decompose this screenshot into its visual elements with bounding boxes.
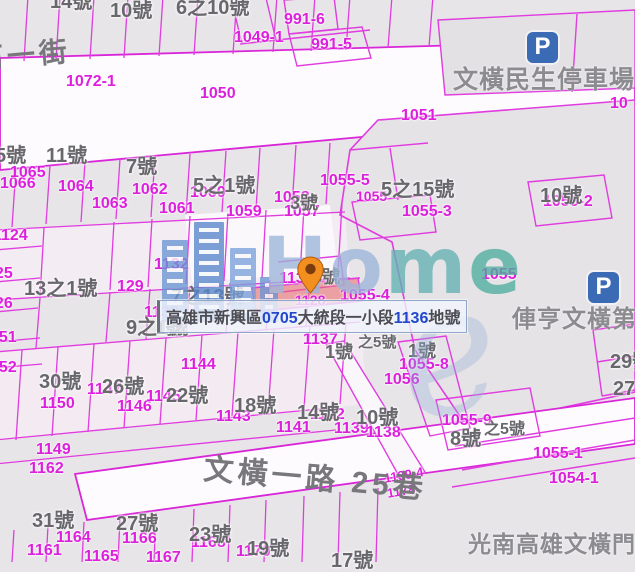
location-banner: 高雄市新興區0705大統段一小段1136地號 bbox=[157, 300, 467, 333]
banner-segment: 0705 bbox=[262, 310, 298, 327]
banner-segment: 大統段一小段 bbox=[298, 310, 394, 327]
banner-segment: 地號 bbox=[428, 310, 460, 327]
banner-segment: 1136 bbox=[394, 310, 429, 327]
banner-segment: 高雄市新興區 bbox=[166, 310, 262, 327]
map-pin-icon[interactable] bbox=[297, 256, 324, 299]
cadastral-map-page: { "app": {"type": "cadastral-map-viewer"… bbox=[0, 0, 635, 562]
